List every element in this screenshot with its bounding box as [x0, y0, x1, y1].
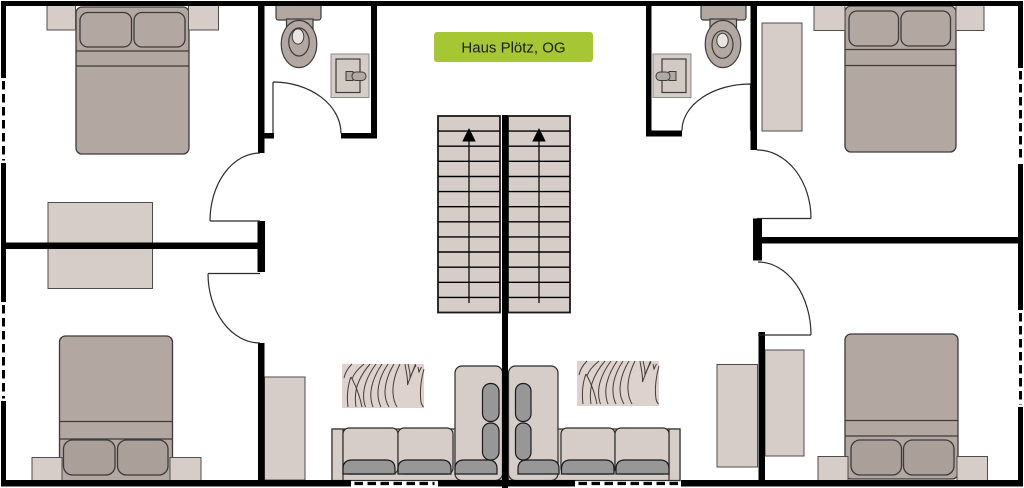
svg-text:Haus Plötz, OG: Haus Plötz, OG — [461, 40, 565, 57]
